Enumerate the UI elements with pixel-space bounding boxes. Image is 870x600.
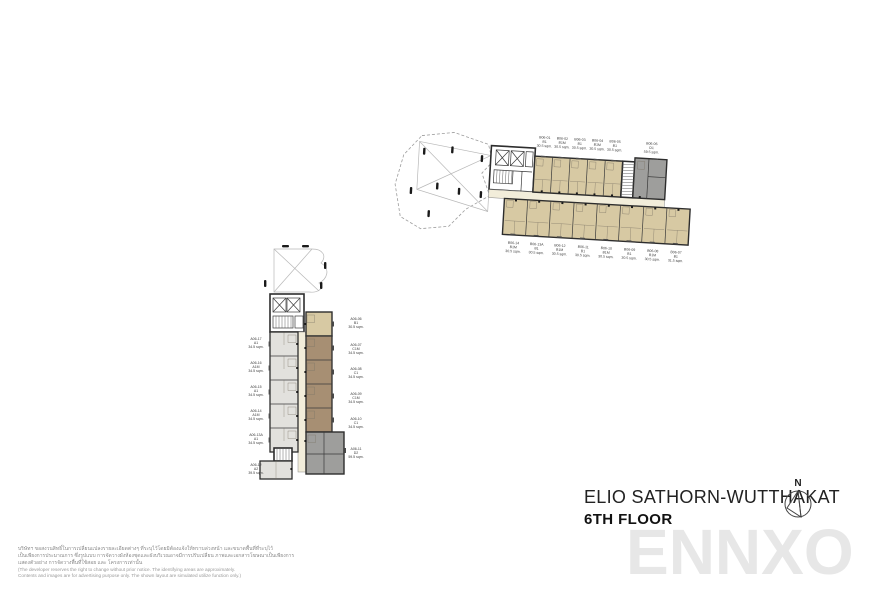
- facade-tick: [333, 322, 334, 327]
- unit-label: B06-13AB130.5 sqm.: [529, 242, 545, 255]
- column-mark: [427, 210, 430, 217]
- unit-label: B06-02B1M30.5 sqm.: [554, 136, 570, 149]
- facade-tick: [333, 346, 334, 351]
- door-mark: [304, 395, 306, 397]
- unit-label: B06-11B130.5 sqm.: [575, 245, 591, 258]
- facade-tick: [333, 394, 334, 399]
- crossed-area-outline: [274, 249, 327, 292]
- unit-label-area: 59.5 sqm.: [644, 150, 660, 155]
- facade-tick: [333, 370, 334, 375]
- door-mark: [611, 194, 613, 196]
- door-mark: [639, 196, 641, 198]
- door-mark: [296, 391, 298, 393]
- unit-label: A06-06B130.5 sqm.: [348, 317, 363, 329]
- disclaimer-line-english: Contents and images are for advertising …: [18, 573, 298, 579]
- facade-tick: [269, 342, 270, 347]
- cross-diagonal: [274, 249, 312, 292]
- unit-label: B06-04B1M30.5 sqm.: [589, 138, 605, 151]
- facade-tick: [626, 240, 631, 242]
- unit-label-area: 31.5 sqm.: [668, 258, 684, 263]
- unit-label-area: 30.5 sqm.: [505, 249, 521, 254]
- building-b-plan: B06-01B130.5 sqm.B06-02B1M30.5 sqm.B06-0…: [388, 126, 706, 289]
- column-mark: [320, 282, 322, 289]
- door-mark: [593, 193, 595, 195]
- unit-label-area: 30.5 sqm.: [572, 146, 588, 151]
- unit-label: A06-14A1M34.5 sqm.: [248, 409, 263, 421]
- door-mark: [677, 209, 679, 211]
- door-mark: [290, 468, 292, 470]
- unit-label-area: 34.5 sqm.: [348, 351, 363, 355]
- unit-label-area: 34.5 sqm.: [248, 345, 263, 349]
- unit-label: B06-06D159.5 sqm.: [644, 141, 660, 154]
- door-mark: [296, 415, 298, 417]
- unit-label-area: 30.5 sqm.: [645, 257, 661, 262]
- facade-tick: [580, 238, 585, 240]
- unit-label: A06-10C134.5 sqm.: [348, 417, 363, 429]
- unit-label-area: 30.5 sqm.: [348, 325, 363, 329]
- door-mark: [304, 440, 306, 442]
- unit-label-area: 34.5 sqm.: [248, 393, 263, 397]
- facade-tick: [345, 448, 346, 453]
- corridor: [298, 332, 306, 472]
- unit-label: B06-01B130.5 sqm.: [537, 135, 553, 148]
- unit-d2-gray: [306, 432, 344, 474]
- compass-n-label: N: [794, 478, 801, 489]
- unit-label: B06-07B131.5 sqm.: [668, 250, 684, 263]
- facade-tick: [269, 414, 270, 419]
- site-boundary-dashed: [393, 129, 494, 232]
- column-mark: [481, 155, 484, 162]
- disclaimer: บริษัทฯ ขอสงวนสิทธิ์ในการเปลี่ยนแปลงรายล…: [18, 546, 298, 579]
- column-mark: [423, 148, 426, 155]
- unit-label: B06-09B130.5 sqm.: [621, 247, 637, 260]
- door-mark: [296, 367, 298, 369]
- unit-label-area: 34.5 sqm.: [348, 425, 363, 429]
- door-mark: [541, 190, 543, 192]
- door-mark: [576, 192, 578, 194]
- facade-tick: [594, 159, 599, 161]
- unit-label: A06-17A134.5 sqm.: [248, 337, 263, 349]
- unit-label-area: 30.5 sqm.: [529, 250, 545, 255]
- watermark: ENNXO: [626, 520, 854, 584]
- disclaimer-line-thai: เป็นเพียงการประมาณการ ซึ่งรูปแบบ การจัดว…: [18, 553, 298, 560]
- door-mark: [304, 347, 306, 349]
- door-mark: [304, 419, 306, 421]
- door-mark: [304, 371, 306, 373]
- column-mark: [324, 262, 326, 269]
- unit-row-top: [533, 156, 623, 197]
- facade-tick: [269, 438, 270, 443]
- door-mark: [608, 205, 610, 207]
- cross-diagonal: [417, 151, 491, 193]
- facade-tick: [534, 235, 539, 237]
- column-mark: [410, 187, 413, 194]
- unit-label-area: 34.5 sqm.: [248, 441, 263, 445]
- compass-north-icon: N: [779, 474, 817, 522]
- facade-tick: [333, 418, 334, 423]
- facade-tick: [650, 242, 655, 244]
- unit-label: A06-09C1M34.5 sqm.: [348, 392, 363, 404]
- compass-needle-line: [798, 491, 801, 517]
- floor-plan-page: B06-01B130.5 sqm.B06-02B1M30.5 sqm.B06-0…: [0, 0, 870, 600]
- unit-label-area: 39.5 sqm.: [248, 471, 263, 475]
- door-mark: [296, 439, 298, 441]
- unit-label-area: 30.5 sqm.: [621, 256, 637, 261]
- unit-label: A06-16A1M34.5 sqm.: [248, 361, 263, 373]
- facade-tick: [576, 158, 581, 160]
- column-mark: [479, 191, 482, 198]
- column-mark: [436, 182, 439, 189]
- door-mark: [654, 207, 656, 209]
- building-a-plan: A06-17A134.5 sqm.A06-16A1M34.5 sqm.A06-1…: [240, 242, 380, 497]
- unit-label: A06-11D259.5 sqm.: [348, 447, 363, 459]
- building-b-svg: B06-01B130.5 sqm.B06-02B1M30.5 sqm.B06-0…: [388, 126, 706, 284]
- unit-label-area: 30.5 sqm.: [554, 145, 570, 150]
- door-mark: [515, 199, 517, 201]
- unit-label: A06-07C1M34.5 sqm.: [348, 343, 363, 355]
- unit-label-area: 30.5 sqm.: [575, 253, 591, 258]
- unit-label: B06-12B1M30.5 sqm.: [552, 243, 568, 256]
- unit-label: B06-10B1M30.5 sqm.: [598, 246, 614, 259]
- door-mark: [558, 191, 560, 193]
- facade-tick: [541, 156, 546, 158]
- unit-label-area: 30.5 sqm.: [607, 148, 623, 153]
- facade-tick: [510, 234, 515, 236]
- unit-label: A06-13AA134.5 sqm.: [248, 433, 263, 445]
- column-mark: [282, 245, 289, 247]
- unit-label-area: 30.5 sqm.: [537, 144, 553, 149]
- disclaimer-line-thai: บริษัทฯ ขอสงวนสิทธิ์ในการเปลี่ยนแปลงรายล…: [18, 546, 298, 553]
- facade-tick: [611, 160, 616, 162]
- unit-label-area: 34.5 sqm.: [348, 400, 363, 404]
- building-a-svg: A06-17A134.5 sqm.A06-16A1M34.5 sqm.A06-1…: [240, 242, 380, 492]
- facade-tick: [673, 243, 678, 245]
- unit-label-area: 30.5 sqm.: [598, 254, 614, 259]
- door-mark: [304, 323, 306, 325]
- door-mark: [296, 343, 298, 345]
- facade-tick: [269, 390, 270, 395]
- facade-tick: [603, 239, 608, 241]
- facade-tick: [653, 158, 658, 160]
- column-mark: [458, 188, 461, 195]
- door-mark: [538, 201, 540, 203]
- unit-label-area: 59.5 sqm.: [348, 455, 363, 459]
- facade-tick: [557, 236, 562, 238]
- unit-label-area: 30.5 sqm.: [552, 252, 568, 257]
- door-mark: [631, 206, 633, 208]
- facade-tick: [558, 157, 563, 159]
- unit-label: A06-15A134.5 sqm.: [248, 385, 263, 397]
- unit-label-area: 34.5 sqm.: [248, 417, 263, 421]
- column-mark: [264, 280, 266, 287]
- unit-label-area: 34.5 sqm.: [248, 369, 263, 373]
- column-mark: [451, 146, 454, 153]
- unit-label-area: 30.5 sqm.: [589, 147, 605, 152]
- column-mark: [302, 245, 309, 247]
- unit-label: B06-05B130.5 sqm.: [607, 139, 623, 152]
- unit-label: B06-08B1M30.5 sqm.: [645, 249, 661, 262]
- disclaimer-line-thai: แสดงตัวอย่าง การจัดวางพื้นที่ใช้สอย และ …: [18, 560, 298, 567]
- door-mark: [585, 203, 587, 205]
- unit-label: B06-03B130.5 sqm.: [572, 137, 588, 150]
- unit-d1-gray: [633, 158, 667, 200]
- facade-tick: [269, 366, 270, 371]
- door-mark: [561, 202, 563, 204]
- unit-label: B06-14B1M30.5 sqm.: [505, 241, 521, 254]
- future-phase-crossed-area: [274, 249, 327, 292]
- unit-b1-beige: [306, 312, 332, 336]
- unit-label-area: 34.5 sqm.: [348, 375, 363, 379]
- unit-label: A06-08C134.5 sqm.: [348, 367, 363, 379]
